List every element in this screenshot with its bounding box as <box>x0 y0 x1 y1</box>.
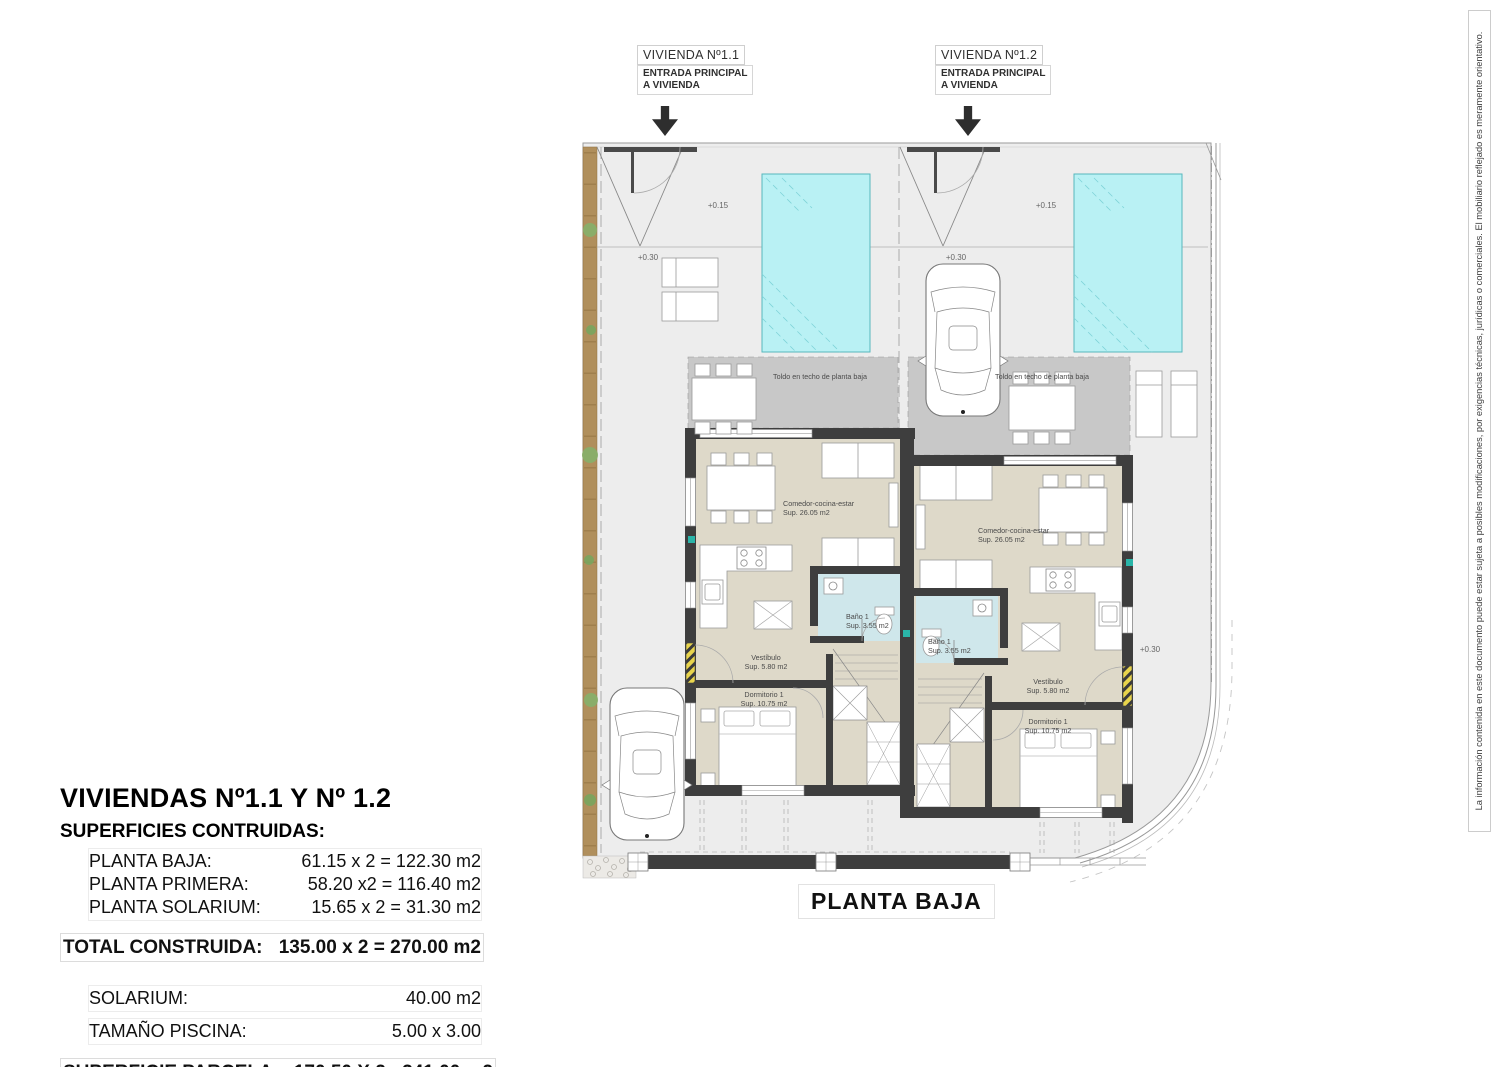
level-mark: +0.15 <box>1036 201 1057 210</box>
bath-sink <box>973 600 992 616</box>
room-area-hall-1: Sup. 5.80 m2 <box>745 662 788 671</box>
solarium-value: 40.00 m2 <box>406 987 481 1010</box>
tv-board <box>916 505 925 549</box>
accent-marker <box>688 536 695 543</box>
room-label-living-2: Comedor-cocina-estar <box>978 526 1050 535</box>
accent-marker <box>903 630 910 637</box>
level-mark: +0.30 <box>1140 645 1161 654</box>
room-label-bath-2: Baño 1 <box>928 637 951 646</box>
tv-board <box>889 483 898 527</box>
car-icon <box>602 688 692 840</box>
entry-door <box>1123 666 1132 706</box>
room-label-living-1: Comedor-cocina-estar <box>783 499 855 508</box>
row-value: 15.65 x 2 = 31.30 m2 <box>311 896 481 919</box>
room-area-hall-2: Sup. 5.80 m2 <box>1027 686 1070 695</box>
house2-title: VIVIENDA Nº1.2 <box>935 45 1043 65</box>
summary-pool-row: TAMAÑO PISCINA: 5.00 x 3.00 <box>88 1018 482 1045</box>
pool-size-label: TAMAÑO PISCINA: <box>89 1020 247 1043</box>
summary-row: PLANTA PRIMERA: 58.20 x2 = 116.40 m2 <box>89 873 481 896</box>
room-label-hall-1: Vestíbulo <box>751 653 781 662</box>
car-icon <box>918 264 1008 416</box>
summary-subtitle: SUPERFICIES CONTRUIDAS: <box>60 821 500 843</box>
room-area-living-1: Sup. 26.05 m2 <box>783 508 830 517</box>
room-area-bath-2: Sup. 3.55 m2 <box>928 646 971 655</box>
summary-solarium-row: SOLARIUM: 40.00 m2 <box>88 985 482 1012</box>
summary-block: VIVIENDAS Nº1.1 Y Nº 1.2 SUPERFICIES CON… <box>60 783 500 1067</box>
level-mark: +0.30 <box>638 253 659 262</box>
pool-2 <box>1074 174 1182 352</box>
house1-entrance-label: ENTRADA PRINCIPAL A VIVIENDA <box>637 65 753 95</box>
total-label: TOTAL CONSTRUIDA: <box>63 935 263 960</box>
nightstand <box>1101 731 1115 744</box>
row-label: PLANTA BAJA: <box>89 850 212 873</box>
summary-title: VIVIENDAS Nº1.1 Y Nº 1.2 <box>60 783 500 814</box>
total-value: 135.00 x 2 = 270.00 m2 <box>279 935 481 960</box>
plan-title: PLANTA BAJA <box>798 884 995 919</box>
bath-sink <box>824 578 843 594</box>
nightstand <box>701 773 715 786</box>
room-label-hall-2: Vestíbulo <box>1033 677 1063 686</box>
summary-parcel-row: SUPERFICIE PARCELA: 170.50 X 2 =341.00 m… <box>60 1058 496 1067</box>
room-label-bath-1: Baño 1 <box>846 612 869 621</box>
pool-size-value: 5.00 x 3.00 <box>392 1020 481 1043</box>
row-label: PLANTA PRIMERA: <box>89 873 249 896</box>
drawing-sheet: Toldo en techo de planta baja Toldo en t… <box>0 0 1509 1067</box>
dining-table <box>707 466 775 510</box>
accent-marker <box>1126 559 1133 566</box>
summary-total-row: TOTAL CONSTRUIDA: 135.00 x 2 = 270.00 m2 <box>60 933 484 962</box>
parcel-value: 170.50 X 2 =341.00 m2 <box>294 1060 493 1067</box>
nightstand <box>701 709 715 722</box>
entrance-line1: ENTRADA PRINCIPAL <box>643 68 747 80</box>
terrace2-dining-set <box>1009 372 1075 444</box>
row-value: 61.15 x 2 = 122.30 m2 <box>301 850 481 873</box>
legal-disclaimer: La información contenida en este documen… <box>1468 10 1491 832</box>
room-label-bedroom-2: Dormitorio 1 <box>1028 717 1067 726</box>
level-mark: +0.30 <box>946 253 967 262</box>
row-value: 58.20 x2 = 116.40 m2 <box>308 873 481 896</box>
level-mark: +0.15 <box>708 201 729 210</box>
terrace1-dining-set <box>692 364 756 434</box>
summary-row: PLANTA BAJA: 61.15 x 2 = 122.30 m2 <box>89 850 481 873</box>
entrance-line2: A VIVIENDA <box>941 80 1045 92</box>
solarium-label: SOLARIUM: <box>89 987 188 1010</box>
row-label: PLANTA SOLARIUM: <box>89 896 261 919</box>
house2-entrance-label: ENTRADA PRINCIPAL A VIVIENDA <box>935 65 1051 95</box>
room-area-living-2: Sup. 26.05 m2 <box>978 535 1025 544</box>
entrance-line2: A VIVIENDA <box>643 80 747 92</box>
room-area-bedroom-1: Sup. 10.75 m2 <box>741 699 788 708</box>
house1-title: VIVIENDA Nº1.1 <box>637 45 745 65</box>
room-area-bedroom-2: Sup. 10.75 m2 <box>1025 726 1072 735</box>
entry-door <box>686 643 695 683</box>
summary-row: PLANTA SOLARIUM: 15.65 x 2 = 31.30 m2 <box>89 896 481 919</box>
terrace-note-1: Toldo en techo de planta baja <box>773 372 867 381</box>
pool-1 <box>762 174 870 352</box>
vegetation-strip <box>582 147 598 856</box>
entrance-line1: ENTRADA PRINCIPAL <box>941 68 1045 80</box>
room-area-bath-1: Sup. 3.55 m2 <box>846 621 889 630</box>
terrace-note-2: Toldo en techo de planta baja <box>995 372 1089 381</box>
nightstand <box>1101 795 1115 808</box>
dining-table <box>1039 488 1107 532</box>
parcel-label: SUPERFICIE PARCELA: <box>63 1060 279 1067</box>
room-label-bedroom-1: Dormitorio 1 <box>744 690 783 699</box>
summary-area-rows: PLANTA BAJA: 61.15 x 2 = 122.30 m2 PLANT… <box>88 848 482 921</box>
